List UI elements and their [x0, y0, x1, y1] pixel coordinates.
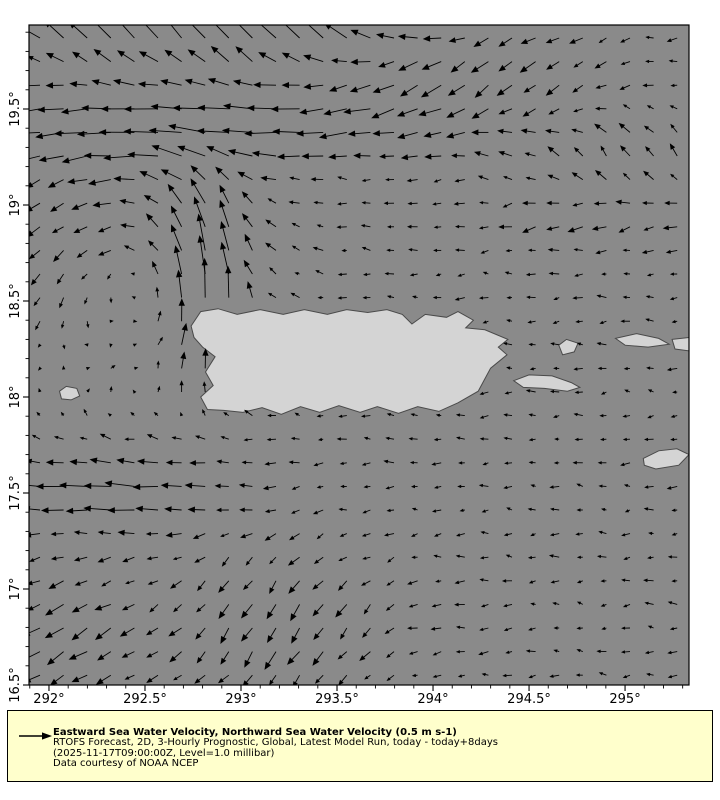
velocity-map: 292°292.5°293°293.5°294°294.5°295°16.5°1… — [0, 0, 720, 710]
puerto-rico — [191, 309, 508, 415]
reference-arrow-icon — [18, 730, 54, 742]
tortola-island — [672, 338, 689, 351]
y-tick-label: 17.5° — [8, 475, 23, 510]
x-tick-label: 293.5° — [315, 692, 359, 707]
y-tick-label: 18° — [8, 385, 23, 408]
y-tick-label: 19.5° — [8, 91, 23, 126]
x-axis-ticks: 292°292.5°293°293.5°294°294.5°295° — [30, 685, 683, 707]
x-tick-label: 294° — [417, 692, 448, 707]
y-tick-label: 19° — [8, 193, 23, 216]
legend-text: Eastward Sea Water Velocity, Northward S… — [53, 728, 498, 770]
x-tick-label: 293° — [225, 692, 256, 707]
x-tick-label: 294.5° — [507, 692, 551, 707]
y-tick-label: 17° — [8, 577, 23, 600]
x-tick-label: 292° — [33, 692, 64, 707]
legend-box: Eastward Sea Water Velocity, Northward S… — [7, 710, 713, 782]
y-axis-ticks: 16.5°17°17.5°18°18.5°19°19.5° — [8, 32, 29, 703]
x-tick-label: 292.5° — [123, 692, 167, 707]
legend-credit: Data courtesy of NOAA NCEP — [53, 759, 498, 769]
x-tick-label: 295° — [609, 692, 640, 707]
y-tick-label: 18.5° — [8, 283, 23, 318]
y-tick-label: 16.5° — [8, 667, 23, 702]
